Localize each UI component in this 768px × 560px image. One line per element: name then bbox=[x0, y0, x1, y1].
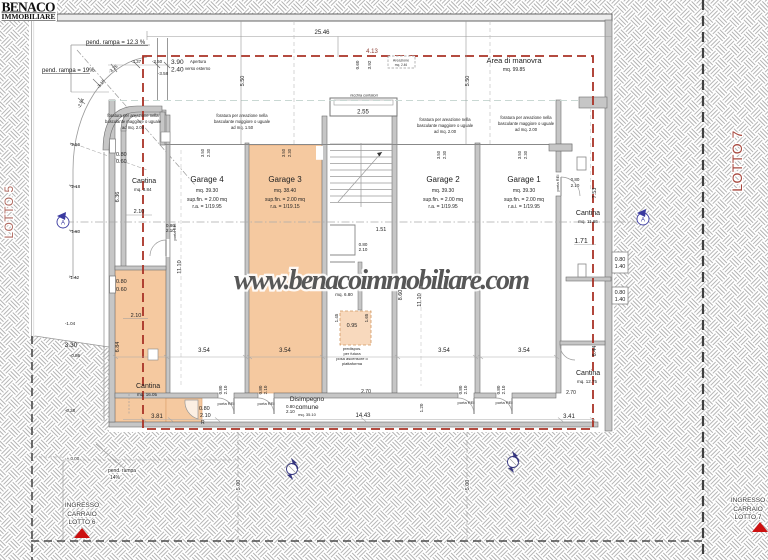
svg-text:2.70: 2.70 bbox=[566, 390, 576, 396]
svg-text:-1.42: -1.42 bbox=[69, 275, 80, 280]
svg-text:3.54: 3.54 bbox=[518, 348, 530, 354]
svg-text:foratura per areazione nella: foratura per areazione nella bbox=[216, 113, 268, 118]
svg-text:pend. rampa: pend. rampa bbox=[108, 468, 136, 474]
svg-text:3.50: 3.50 bbox=[200, 148, 205, 157]
svg-text:porta REI: porta REI bbox=[496, 400, 513, 405]
svg-text:mq. 39.30: mq. 39.30 bbox=[513, 188, 535, 194]
svg-text:Garage 2: Garage 2 bbox=[426, 175, 460, 184]
svg-text:3.41: 3.41 bbox=[563, 414, 575, 420]
svg-text:mq. 16.05: mq. 16.05 bbox=[137, 392, 158, 397]
svg-text:3.54: 3.54 bbox=[438, 348, 450, 354]
svg-text:nicchia contatori: nicchia contatori bbox=[350, 94, 378, 98]
svg-text:7.53: 7.53 bbox=[592, 188, 598, 199]
svg-text:-3.58: -3.58 bbox=[158, 71, 169, 76]
svg-text:mq. 3.84: mq. 3.84 bbox=[134, 187, 152, 192]
svg-text:R: R bbox=[201, 420, 205, 426]
svg-text:1.20: 1.20 bbox=[419, 403, 424, 412]
svg-text:2.40: 2.40 bbox=[171, 67, 184, 74]
svg-text:5.00: 5.00 bbox=[236, 480, 242, 491]
svg-text:basculante maggiore o uguale: basculante maggiore o uguale bbox=[214, 119, 271, 124]
svg-text:25.46: 25.46 bbox=[314, 30, 330, 36]
svg-text:Cantina: Cantina bbox=[136, 383, 160, 390]
svg-text:-0.86: -0.86 bbox=[70, 353, 81, 358]
svg-text:0.60: 0.60 bbox=[116, 287, 127, 293]
svg-text:2.30: 2.30 bbox=[523, 150, 528, 159]
svg-text:mq. 39.30: mq. 39.30 bbox=[196, 188, 218, 194]
svg-text:-1.80: -1.80 bbox=[70, 229, 81, 234]
svg-text:3.50: 3.50 bbox=[281, 148, 286, 157]
svg-text:11.10: 11.10 bbox=[417, 293, 423, 306]
svg-text:pend. rampa = 12.3 %: pend. rampa = 12.3 % bbox=[86, 40, 146, 46]
svg-text:A: A bbox=[61, 221, 65, 227]
svg-text:-2.56: -2.56 bbox=[70, 142, 81, 147]
svg-text:0.80: 0.80 bbox=[199, 406, 210, 412]
svg-text:ad mq. 1.50: ad mq. 1.50 bbox=[231, 125, 254, 130]
svg-text:1.51: 1.51 bbox=[376, 227, 387, 233]
svg-text:3.30: 3.30 bbox=[65, 342, 78, 349]
svg-text:foratura per areazione nella: foratura per areazione nella bbox=[107, 113, 159, 118]
svg-text:www.benacoimmobiliare.com: www.benacoimmobiliare.com bbox=[234, 265, 530, 296]
svg-text:foratura per areazione nella: foratura per areazione nella bbox=[500, 115, 552, 120]
svg-text:mq. 99.85: mq. 99.85 bbox=[503, 67, 525, 73]
svg-text:2.10: 2.10 bbox=[134, 209, 145, 215]
svg-text:basculante maggiore o uguale: basculante maggiore o uguale bbox=[498, 121, 555, 126]
svg-text:IMMOBILIARE: IMMOBILIARE bbox=[2, 12, 56, 21]
svg-text:pend. rampa = 19%: pend. rampa = 19% bbox=[42, 68, 95, 74]
svg-text:2.10: 2.10 bbox=[286, 409, 295, 414]
svg-text:-0.28: -0.28 bbox=[65, 408, 76, 413]
svg-text:sup.fin. = 2.00 mq: sup.fin. = 2.00 mq bbox=[423, 197, 463, 203]
svg-text:2.55: 2.55 bbox=[357, 110, 369, 116]
svg-text:Garage 4: Garage 4 bbox=[190, 175, 224, 184]
svg-text:mq. 35.10: mq. 35.10 bbox=[298, 412, 317, 417]
svg-text:CARRAIO: CARRAIO bbox=[67, 511, 97, 518]
svg-text:1.45: 1.45 bbox=[334, 313, 339, 322]
svg-text:Apertura: Apertura bbox=[190, 59, 207, 64]
svg-text:2.10: 2.10 bbox=[223, 385, 228, 394]
svg-text:2.10: 2.10 bbox=[263, 385, 268, 394]
svg-text:LOTTO 7: LOTTO 7 bbox=[735, 514, 762, 521]
svg-text:LOTTO 5: LOTTO 5 bbox=[2, 185, 16, 238]
svg-text:2.10: 2.10 bbox=[501, 385, 506, 394]
svg-text:1.71: 1.71 bbox=[574, 238, 588, 245]
svg-text:porta REI: porta REI bbox=[555, 175, 560, 192]
svg-text:6.84: 6.84 bbox=[115, 342, 121, 353]
svg-text:mq. 6.80: mq. 6.80 bbox=[335, 292, 353, 297]
svg-text:0.80: 0.80 bbox=[116, 279, 127, 285]
svg-text:r.a. = 1/19.95: r.a. = 1/19.95 bbox=[192, 204, 222, 210]
svg-text:0.95: 0.95 bbox=[347, 323, 358, 329]
svg-text:3.54: 3.54 bbox=[279, 348, 291, 354]
svg-text:mq. 12.75: mq. 12.75 bbox=[577, 379, 598, 384]
svg-text:6.36: 6.36 bbox=[115, 192, 121, 203]
svg-text:0.80: 0.80 bbox=[615, 290, 626, 296]
svg-text:basculante maggiore o uguale: basculante maggiore o uguale bbox=[417, 123, 474, 128]
svg-text:ad mq. 2.00: ad mq. 2.00 bbox=[122, 125, 145, 130]
svg-text:3.50: 3.50 bbox=[517, 150, 522, 159]
svg-text:1.40: 1.40 bbox=[615, 264, 626, 270]
svg-text:3.92: 3.92 bbox=[367, 60, 372, 69]
svg-text:1.65: 1.65 bbox=[364, 313, 369, 322]
svg-text:LOTTO 6: LOTTO 6 bbox=[69, 519, 96, 526]
svg-text:14.43: 14.43 bbox=[355, 413, 371, 419]
svg-text:LOTTO 7: LOTTO 7 bbox=[729, 130, 745, 192]
svg-text:-1.04: -1.04 bbox=[65, 321, 76, 326]
svg-text:Garage 1: Garage 1 bbox=[507, 175, 541, 184]
svg-text:0.60: 0.60 bbox=[355, 60, 360, 69]
svg-text:porta REI: porta REI bbox=[458, 400, 475, 405]
svg-text:3.81: 3.81 bbox=[151, 414, 163, 420]
svg-text:Areazione: Areazione bbox=[393, 59, 409, 63]
svg-text:2.10: 2.10 bbox=[166, 228, 175, 233]
svg-text:0.80: 0.80 bbox=[615, 257, 626, 263]
svg-text:mq. 39.30: mq. 39.30 bbox=[432, 188, 454, 194]
svg-text:3.54: 3.54 bbox=[198, 348, 210, 354]
svg-text:2.10: 2.10 bbox=[463, 385, 468, 394]
svg-text:0.60: 0.60 bbox=[116, 159, 127, 165]
svg-text:2.70: 2.70 bbox=[361, 389, 371, 395]
svg-text:2.30: 2.30 bbox=[206, 148, 211, 157]
svg-text:8.60: 8.60 bbox=[398, 290, 404, 301]
svg-text:Cantina: Cantina bbox=[576, 210, 600, 217]
svg-text:INGRESSO: INGRESSO bbox=[65, 502, 99, 509]
svg-text:2.10: 2.10 bbox=[359, 247, 368, 252]
svg-text:2.10: 2.10 bbox=[200, 413, 211, 419]
svg-text:-3.37: -3.37 bbox=[131, 59, 142, 64]
svg-text:r.a.i. = 1/19.95: r.a.i. = 1/19.95 bbox=[508, 204, 540, 210]
svg-text:ad mq. 2.00: ad mq. 2.00 bbox=[434, 129, 457, 134]
svg-text:r.a. = 1/19.15: r.a. = 1/19.15 bbox=[270, 204, 300, 210]
svg-text:2.30: 2.30 bbox=[287, 148, 292, 157]
svg-text:Cantina: Cantina bbox=[132, 178, 156, 185]
svg-text:11.10: 11.10 bbox=[177, 260, 183, 273]
svg-text:2.30: 2.30 bbox=[442, 150, 447, 159]
svg-text:Garage 3: Garage 3 bbox=[268, 175, 302, 184]
svg-text:foratura per areazione nella: foratura per areazione nella bbox=[419, 117, 471, 122]
svg-text:sup.fin. = 2.00 mq: sup.fin. = 2.00 mq bbox=[187, 197, 227, 203]
svg-text:Cantina: Cantina bbox=[576, 370, 600, 377]
svg-text:2.10: 2.10 bbox=[131, 313, 142, 319]
svg-text:porta REI: porta REI bbox=[258, 401, 275, 406]
svg-text:sup.fin. = 2.00 mq: sup.fin. = 2.00 mq bbox=[265, 197, 305, 203]
svg-text:comune: comune bbox=[295, 404, 319, 411]
svg-text:14%: 14% bbox=[110, 475, 121, 481]
svg-text:INGRESSO: INGRESSO bbox=[731, 497, 765, 504]
svg-text:6.44: 6.44 bbox=[592, 346, 598, 357]
svg-text:ad mq. 2.00: ad mq. 2.00 bbox=[515, 127, 538, 132]
svg-text:r.a. = 1/19.95: r.a. = 1/19.95 bbox=[428, 204, 458, 210]
svg-text:piattaforma: piattaforma bbox=[342, 361, 363, 366]
svg-text:porta REI: porta REI bbox=[218, 401, 235, 406]
svg-text:4.13: 4.13 bbox=[366, 49, 378, 55]
svg-text:mq. 38.40: mq. 38.40 bbox=[274, 188, 296, 194]
svg-text:5.00: 5.00 bbox=[465, 480, 471, 491]
svg-text:0.80: 0.80 bbox=[571, 177, 580, 182]
svg-text:1.40: 1.40 bbox=[615, 297, 626, 303]
svg-text:A: A bbox=[641, 218, 645, 224]
svg-text:basculante maggiore o uguale: basculante maggiore o uguale bbox=[105, 119, 162, 124]
svg-text:3.90: 3.90 bbox=[171, 59, 184, 66]
svg-text:Area di manovra: Area di manovra bbox=[486, 56, 542, 65]
svg-text:sup.fin. = 2.00 mq: sup.fin. = 2.00 mq bbox=[504, 197, 544, 203]
svg-text:CARRAIO: CARRAIO bbox=[733, 506, 763, 513]
svg-text:Disimpegno: Disimpegno bbox=[290, 396, 325, 403]
svg-text:-3.50: -3.50 bbox=[152, 59, 163, 64]
svg-text:verso esterno: verso esterno bbox=[185, 66, 211, 71]
svg-text:3.50: 3.50 bbox=[436, 150, 441, 159]
svg-text:mq. 2.46: mq. 2.46 bbox=[395, 63, 408, 67]
svg-text:0.80: 0.80 bbox=[116, 152, 127, 158]
svg-text:mq. 11.65: mq. 11.65 bbox=[578, 219, 598, 224]
svg-text:-2.18: -2.18 bbox=[70, 184, 81, 189]
